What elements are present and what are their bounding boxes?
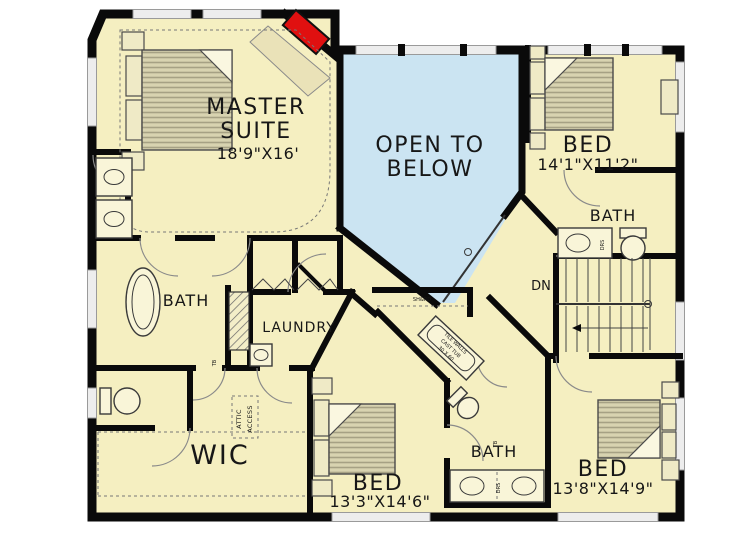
bed4-dims: 13'8"X14'9"	[552, 479, 653, 498]
bath-master-label: BATH	[163, 291, 209, 310]
window	[88, 270, 97, 328]
window	[88, 388, 97, 418]
window	[676, 398, 685, 470]
stairs-dn-label: DN	[531, 279, 551, 294]
headboard-pillow	[126, 100, 142, 140]
master-suite-label-1: MASTER	[206, 95, 306, 120]
drawers-label-upper: DRS	[600, 240, 606, 251]
toilet-tank	[100, 388, 111, 414]
attic-access-label-1: ATTIC	[235, 409, 243, 429]
laundry-label: LAUNDRY	[262, 320, 336, 336]
window	[332, 513, 430, 522]
shelf-rod-label: SH&RD	[413, 297, 431, 303]
laundry-sink-cabinet	[250, 344, 272, 366]
headboard-pillow	[530, 62, 545, 94]
bathtub	[126, 268, 160, 336]
linen-cabinet	[229, 292, 249, 350]
nightstand	[122, 32, 144, 50]
bed3-dims: 13'3"X14'6"	[329, 492, 430, 511]
drawers-label-lower: DRS	[496, 483, 502, 494]
toilet-bowl	[114, 388, 140, 414]
master-suite-label-2: SUITE	[220, 119, 291, 144]
open-below-label-2: BELOW	[386, 157, 473, 182]
window-mullion	[584, 44, 591, 56]
window	[88, 58, 97, 126]
nightstand	[662, 382, 679, 398]
headboard-pillow	[530, 98, 545, 130]
bed2-dims: 14'1"X11'2"	[537, 155, 638, 174]
headboard-pillow	[126, 56, 142, 96]
window	[676, 302, 685, 360]
window	[356, 46, 496, 55]
headboard-pillow	[662, 432, 676, 458]
vanity	[96, 158, 132, 196]
window	[133, 10, 191, 19]
window	[548, 46, 662, 55]
dresser	[661, 80, 678, 114]
floor-plan-drawing: MASTER SUITE 18'9"X16' OPEN TO BELOW BED…	[0, 0, 750, 534]
nightstand	[662, 460, 679, 480]
nightstand	[312, 378, 332, 394]
headboard-pillow	[662, 404, 676, 430]
headboard-pillow	[314, 440, 329, 476]
vanity	[96, 200, 132, 238]
towel-bar-label-2: TB	[493, 440, 499, 448]
window	[558, 513, 658, 522]
wic-label: WIC	[190, 440, 250, 471]
toilet-bowl	[621, 236, 645, 260]
window-mullion	[398, 44, 405, 56]
window	[203, 10, 261, 19]
bath-upper-label: BATH	[590, 206, 636, 225]
towel-bar-label-1: TB	[212, 359, 218, 367]
nightstand	[530, 133, 545, 149]
window-mullion	[460, 44, 467, 56]
nightstand	[530, 46, 545, 59]
master-suite-dims: 18'9"X16'	[217, 144, 300, 163]
open-below-label-1: OPEN TO	[375, 133, 484, 158]
headboard-pillow	[314, 400, 329, 436]
window-mullion	[622, 44, 629, 56]
attic-access-label-2: ACCESS	[246, 405, 254, 433]
floor-plan-canvas: MASTER SUITE 18'9"X16' OPEN TO BELOW BED…	[0, 0, 750, 534]
